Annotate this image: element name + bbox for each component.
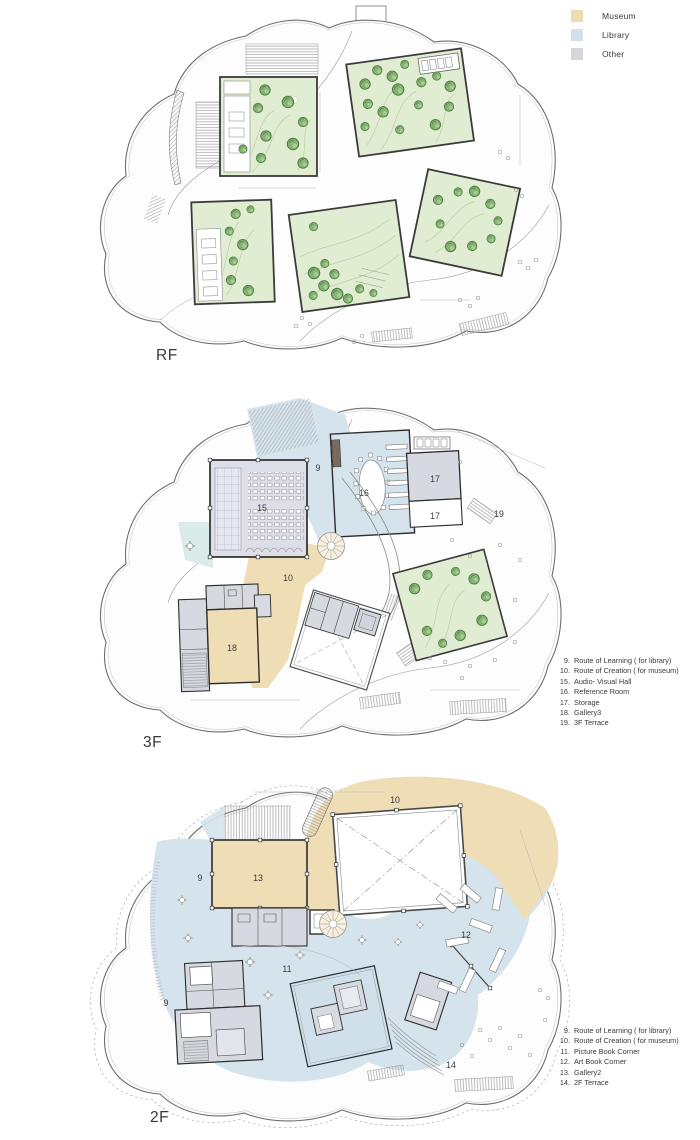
f2-spiral-stair	[320, 911, 347, 938]
f3-spiral-stair	[318, 533, 345, 560]
f2-tilted-room	[290, 966, 392, 1067]
room-label-13: 13	[253, 873, 263, 883]
legend-label-museum: Museum	[602, 11, 636, 21]
room-label-9b: 9	[164, 998, 169, 1008]
room-label-10: 10	[283, 573, 293, 583]
rf-roof-garden-1	[220, 77, 317, 176]
rf-plan: RF	[100, 6, 561, 364]
room-label-17b: 17	[430, 511, 440, 521]
list-item: 18.Gallery3	[554, 708, 700, 718]
room-label-17a: 17	[430, 474, 440, 484]
list-item: 14.2F Terrace	[554, 1078, 700, 1088]
floor-label-3f: 3F	[143, 734, 162, 751]
list-item: 13.Gallery2	[554, 1068, 700, 1078]
f3-room-16-reference-room	[330, 430, 414, 537]
floor-label-2f: 2F	[150, 1109, 169, 1126]
list-item: 9.Route of Learning ( for library)	[554, 656, 700, 666]
f2-room-list: 9.Route of Learning ( for library) 10.Ro…	[554, 1026, 700, 1088]
room-label-15: 15	[257, 503, 267, 513]
room-label-16: 16	[359, 488, 369, 498]
list-item: 11.Picture Book Corner	[554, 1047, 700, 1057]
rf-roof-garden-3	[191, 200, 275, 305]
room-label-10: 10	[390, 795, 400, 805]
rf-stair-top	[246, 44, 318, 74]
list-item: 19.3F Terrace	[554, 718, 700, 728]
room-label-12: 12	[461, 930, 471, 940]
rf-roof-garden-2	[346, 48, 474, 156]
list-item: 16.Reference Room	[554, 687, 700, 697]
list-item: 17.Storage	[554, 698, 700, 708]
f3-room-list: 9.Route of Learning ( for library) 10.Ro…	[554, 656, 700, 729]
library-swatch	[571, 29, 583, 41]
f3-kiosk	[332, 440, 341, 467]
floor-plans-canvas: RF	[0, 0, 700, 1140]
list-item: 10.Route of Creation ( for museum)	[554, 666, 700, 676]
museum-swatch	[571, 10, 583, 22]
f2-stair-top	[224, 806, 290, 840]
legend: Museum Library Other	[571, 6, 696, 63]
list-item: 10.Route of Creation ( for museum)	[554, 1036, 700, 1046]
list-item: 12.Art Book Corner	[554, 1057, 700, 1067]
f3-plan: 9 15 16 17 17 19 10 18 3F	[100, 398, 561, 751]
other-swatch	[571, 48, 583, 60]
legend-label-library: Library	[602, 30, 629, 40]
floor-label-rf: RF	[156, 347, 178, 364]
legend-item-museum: Museum	[571, 6, 696, 25]
room-label-9: 9	[316, 463, 321, 473]
room-label-19: 19	[494, 509, 504, 519]
rf-stair-left	[196, 102, 220, 168]
room-label-18: 18	[227, 643, 237, 653]
room-label-11: 11	[282, 964, 291, 974]
f3-stair-bottom-right	[450, 699, 507, 715]
floor-plan-sheet: RF	[0, 0, 700, 1140]
legend-item-other: Other	[571, 44, 696, 63]
room-label-9a: 9	[198, 873, 203, 883]
rf-roof-garden-5	[410, 169, 520, 276]
rf-roof-garden-4	[289, 200, 410, 312]
list-item: 9.Route of Learning ( for library)	[554, 1026, 700, 1036]
legend-label-other: Other	[602, 49, 624, 59]
room-label-14: 14	[446, 1060, 456, 1070]
legend-item-library: Library	[571, 25, 696, 44]
f2-plan: 10 13 9 9 11 12 14 2F	[91, 777, 570, 1128]
list-item: 15.Audio- Visual Hall	[554, 677, 700, 687]
